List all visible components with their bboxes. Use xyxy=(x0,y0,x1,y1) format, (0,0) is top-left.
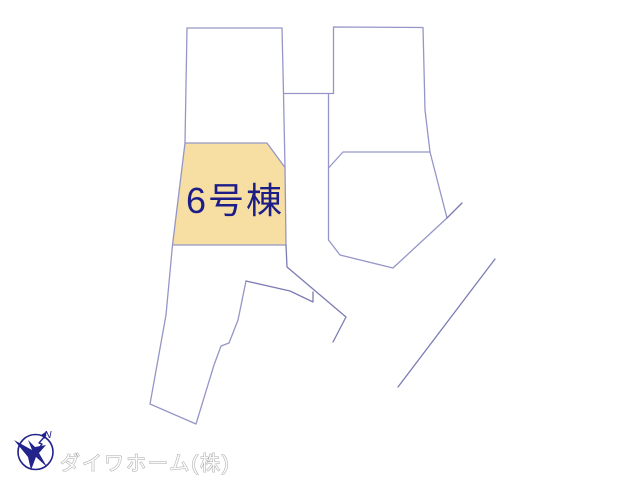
company-name: ダイワホーム(株) xyxy=(60,452,231,475)
parcel-6-label: 6号棟 xyxy=(186,180,284,221)
parcel-middleright-outline xyxy=(329,152,448,268)
road-edge-peak-branch xyxy=(246,281,313,302)
site-plan-svg: 6号棟 N ダイワホーム(株) xyxy=(0,0,640,480)
road-edge-diagonal xyxy=(398,259,495,387)
road-edge-spur xyxy=(447,203,462,218)
compass: N xyxy=(14,429,53,470)
north-label: N xyxy=(44,429,52,441)
parcel-lowerleft-outline xyxy=(150,245,246,424)
parcel-topleft-left-edge xyxy=(185,28,187,143)
parcel-topright-outline xyxy=(329,27,431,168)
site-plan-page: 6号棟 N ダイワホーム(株) xyxy=(0,0,640,480)
